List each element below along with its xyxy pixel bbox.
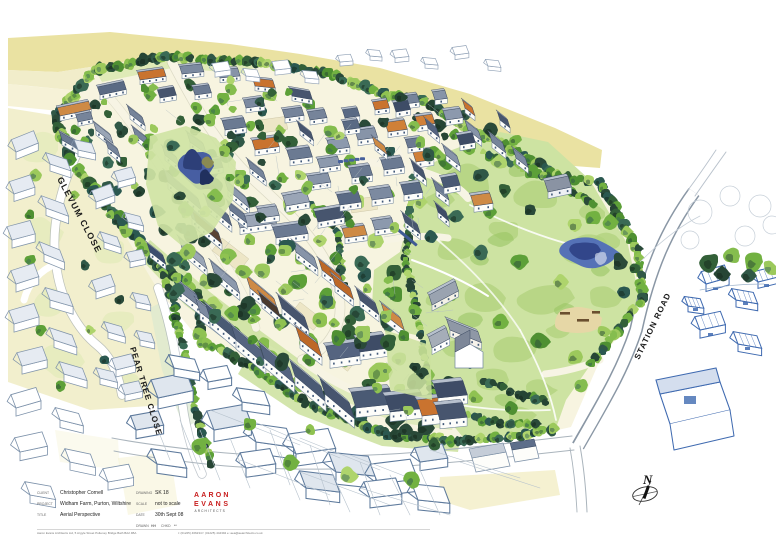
- svg-text:TITLE: TITLE: [37, 513, 47, 517]
- svg-text:DRAWN: DRAWN: [136, 524, 149, 528]
- svg-text:CLIENT: CLIENT: [37, 491, 49, 495]
- svg-text:SK 18: SK 18: [155, 490, 169, 496]
- svg-text:HH: HH: [151, 524, 156, 528]
- svg-text:PROJECT: PROJECT: [37, 502, 53, 506]
- svg-text:Christopher Cornell: Christopher Cornell: [60, 490, 103, 496]
- svg-text:DATE: DATE: [136, 513, 146, 517]
- svg-text:Aerial Perspective: Aerial Perspective: [60, 512, 101, 518]
- svg-text:30th Sept 08: 30th Sept 08: [155, 512, 184, 518]
- svg-text:t: (01225) 466234 f: (0122: t: (01225) 466234 f: (01225) 444394 e: a…: [178, 531, 263, 535]
- svg-text:DRAWING: DRAWING: [136, 491, 153, 495]
- svg-text:AARON: AARON: [194, 492, 231, 499]
- svg-text:EVANS: EVANS: [194, 501, 231, 508]
- svg-text:Aaron Evans Architects Ltd, 5: Aaron Evans Architects Ltd, 5 Argyle Str…: [37, 531, 136, 535]
- svg-text:ARCHITECTS: ARCHITECTS: [195, 509, 226, 513]
- svg-text:SCALE: SCALE: [136, 502, 148, 506]
- svg-text:Widham Farm, Purton, Wiltshire: Widham Farm, Purton, Wiltshire: [60, 501, 131, 507]
- svg-text:CHKD: CHKD: [161, 524, 171, 528]
- svg-text:not to scale: not to scale: [155, 501, 181, 507]
- svg-text:N: N: [642, 472, 653, 487]
